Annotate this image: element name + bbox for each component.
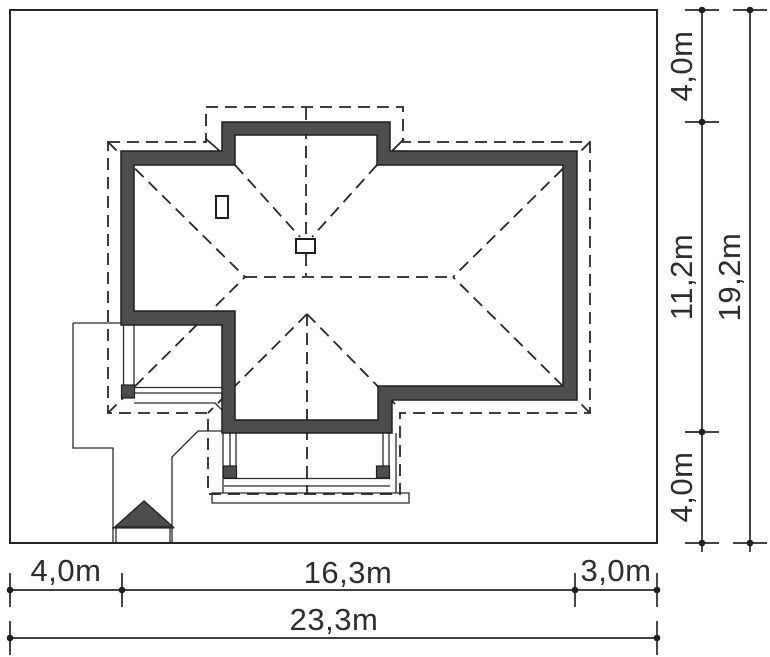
site-plan-canvas: 4,0m 11,2m 4,0m 19,2m 4,0m 16,3m 3,0m 23…: [0, 0, 770, 657]
plot-boundary: [10, 10, 657, 543]
dim-label-right-top: 4,0m: [664, 31, 699, 102]
dim-label-bottom-left: 4,0m: [31, 553, 102, 588]
porch-pillar-right: [377, 466, 390, 478]
dim-label-right-middle: 11,2m: [664, 234, 699, 320]
site-plan-drawing: 4,0m 11,2m 4,0m 19,2m 4,0m 16,3m 3,0m 23…: [0, 0, 770, 657]
chimney-center: [296, 239, 315, 253]
dim-label-right-total: 19,2m: [712, 233, 747, 322]
entrance-gate-roof: [115, 501, 173, 527]
chimney-left: [216, 196, 228, 218]
corner-terrace-pillar: [122, 385, 135, 398]
porch-pillar-left: [224, 466, 237, 478]
dim-label-bottom-total: 23,3m: [290, 602, 379, 637]
dim-label-bottom-right: 3,0m: [581, 553, 652, 588]
corner-terrace: [124, 325, 224, 411]
dim-label-bottom-middle: 16,3m: [304, 555, 393, 590]
dim-label-right-bottom: 4,0m: [664, 452, 699, 523]
